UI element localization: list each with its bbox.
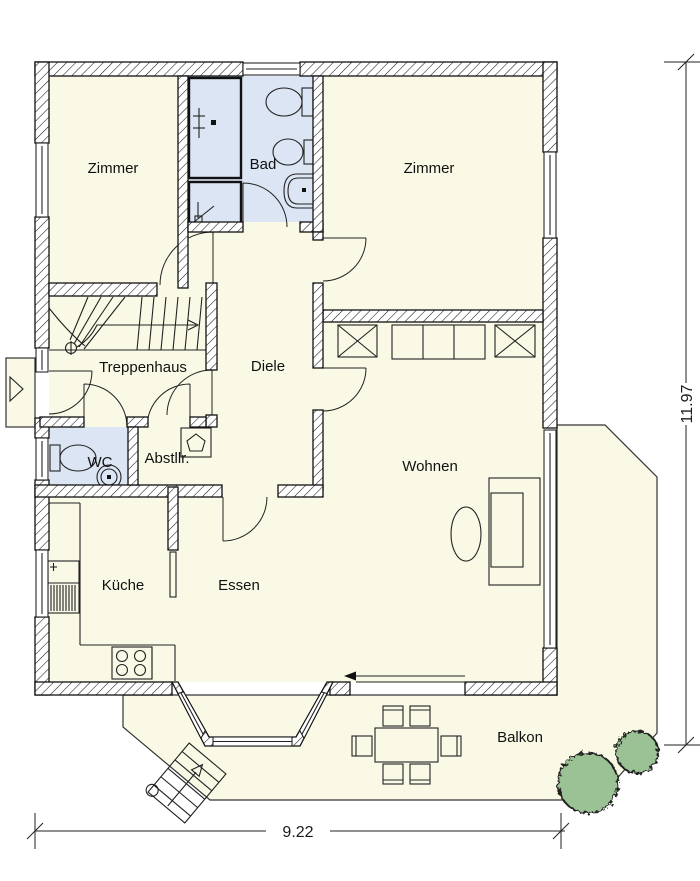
floor-plan-page: 11.97 9.22 Zimmer Bad Zimmer Treppenhaus…	[0, 0, 700, 876]
room-label-wc: WC	[88, 454, 113, 471]
room-label-zimmer-left: Zimmer	[88, 160, 139, 177]
tree-large	[558, 753, 618, 813]
room-label-zimmer-right: Zimmer	[404, 160, 455, 177]
room-label-treppenhaus: Treppenhaus	[99, 359, 187, 376]
room-bad-floor	[188, 76, 314, 222]
dimension-height-label: 11.97	[679, 384, 696, 423]
room-label-essen: Essen	[218, 577, 260, 594]
garden-stairs-post	[144, 782, 161, 799]
room-label-diele: Diele	[251, 358, 285, 375]
room-label-balkon: Balkon	[497, 729, 543, 746]
window-bad-top	[243, 63, 300, 75]
room-label-abstellraum: Abstllr.	[144, 450, 189, 467]
entrance-porch	[6, 358, 35, 427]
window-zimmer-right	[544, 152, 556, 238]
room-label-bad: Bad	[250, 156, 277, 173]
room-label-wohnen: Wohnen	[402, 458, 458, 475]
window-kueche	[36, 550, 48, 617]
dimension-width-label: 9.22	[282, 824, 313, 841]
floor-plan-canvas: 11.97 9.22 Zimmer Bad Zimmer Treppenhaus…	[0, 0, 700, 876]
room-label-kueche: Küche	[102, 577, 145, 594]
dimension-horizontal: 9.22	[27, 813, 569, 849]
window-wohnen	[544, 430, 556, 648]
window-treppenhaus	[36, 348, 48, 372]
window-zimmer-left	[36, 143, 48, 217]
dimension-vertical: 11.97	[664, 54, 700, 753]
window-wc	[36, 438, 48, 480]
tree-small	[616, 731, 658, 773]
